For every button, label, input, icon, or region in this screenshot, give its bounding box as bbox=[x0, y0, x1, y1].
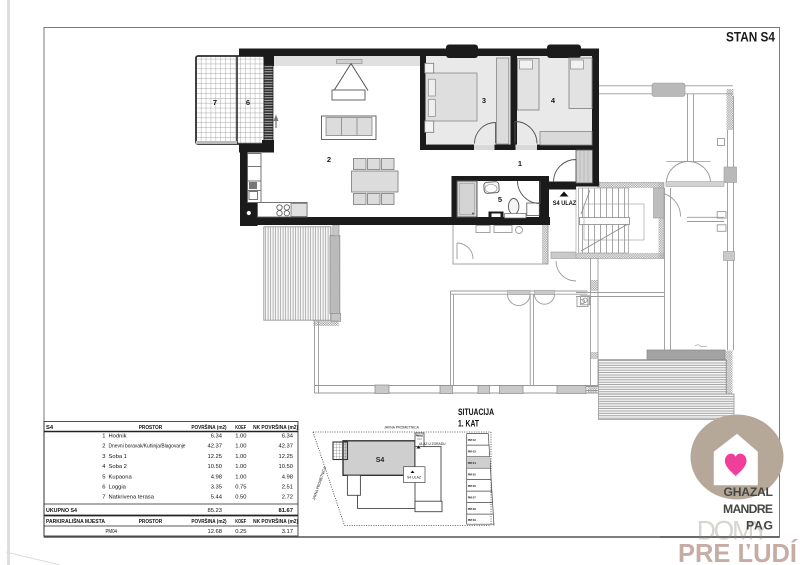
svg-text:5.44: 5.44 bbox=[211, 495, 223, 501]
svg-text:PM04: PM04 bbox=[106, 529, 118, 535]
svg-text:Soba 1: Soba 1 bbox=[109, 454, 127, 460]
svg-text:0.25: 0.25 bbox=[235, 529, 246, 535]
svg-text:12.68: 12.68 bbox=[207, 529, 222, 535]
svg-text:4.98: 4.98 bbox=[282, 474, 293, 480]
svg-text:Natkrivena terasa: Natkrivena terasa bbox=[109, 495, 155, 501]
svg-text:1. KAT: 1. KAT bbox=[458, 419, 479, 429]
svg-text:Loggia: Loggia bbox=[109, 485, 127, 491]
svg-text:6.34: 6.34 bbox=[211, 434, 223, 440]
svg-text:1: 1 bbox=[518, 159, 522, 168]
svg-text:KOEF: KOEF bbox=[235, 519, 246, 525]
svg-text:PRE ĽUDÍ: PRE ĽUDÍ bbox=[678, 539, 798, 565]
svg-text:1.00: 1.00 bbox=[235, 444, 246, 450]
svg-text:1.00: 1.00 bbox=[235, 454, 246, 460]
svg-text:10.50: 10.50 bbox=[207, 464, 222, 470]
svg-text:1.00: 1.00 bbox=[235, 464, 246, 470]
svg-text:6: 6 bbox=[246, 98, 250, 107]
svg-text:S4: S4 bbox=[46, 425, 54, 431]
svg-text:PM 05: PM 05 bbox=[468, 473, 477, 477]
svg-text:PM 02: PM 02 bbox=[468, 438, 477, 442]
svg-text:UKUPNO S4: UKUPNO S4 bbox=[46, 508, 78, 514]
svg-text:2.51: 2.51 bbox=[282, 485, 293, 491]
svg-text:Soba 2: Soba 2 bbox=[109, 464, 127, 470]
svg-text:S4: S4 bbox=[376, 457, 385, 464]
svg-text:1.00: 1.00 bbox=[235, 474, 246, 480]
svg-text:1.00: 1.00 bbox=[235, 434, 246, 440]
svg-text:Kupaona: Kupaona bbox=[109, 474, 133, 480]
svg-text:42.37: 42.37 bbox=[278, 444, 293, 450]
svg-text:12.25: 12.25 bbox=[278, 454, 293, 460]
svg-text:ULAZ U ZGRADU: ULAZ U ZGRADU bbox=[419, 442, 446, 446]
svg-text:5: 5 bbox=[498, 195, 502, 204]
svg-text:NK POVRŠINA (m2): NK POVRŠINA (m2) bbox=[253, 517, 298, 525]
svg-text:12.25: 12.25 bbox=[207, 454, 222, 460]
svg-text:POVRŠINA (m2): POVRŠINA (m2) bbox=[191, 423, 226, 431]
svg-text:0.75: 0.75 bbox=[235, 485, 246, 491]
svg-text:MANDRE: MANDRE bbox=[723, 502, 773, 516]
svg-text:JAVNA PROMETNICA: JAVNA PROMETNICA bbox=[384, 424, 419, 429]
svg-text:PM 03: PM 03 bbox=[468, 450, 477, 454]
svg-text:PM 07: PM 07 bbox=[468, 496, 477, 500]
svg-text:PM 01: PM 01 bbox=[416, 435, 424, 438]
svg-text:Hodnik: Hodnik bbox=[109, 434, 127, 440]
svg-text:PROSTOR: PROSTOR bbox=[139, 425, 163, 431]
svg-text:7: 7 bbox=[213, 98, 217, 107]
svg-text:KOEF: KOEF bbox=[235, 425, 246, 431]
svg-text:PAG: PAG bbox=[746, 519, 773, 533]
svg-text:2: 2 bbox=[102, 444, 105, 450]
svg-text:PM 09: PM 09 bbox=[468, 518, 477, 522]
svg-text:4.98: 4.98 bbox=[211, 474, 222, 480]
svg-text:3: 3 bbox=[102, 454, 105, 460]
svg-text:7: 7 bbox=[102, 495, 105, 501]
svg-text:85.23: 85.23 bbox=[207, 508, 222, 514]
svg-text:3.17: 3.17 bbox=[282, 529, 293, 535]
svg-text:0.50: 0.50 bbox=[235, 495, 246, 501]
svg-text:3.35: 3.35 bbox=[211, 485, 222, 491]
svg-text:GHAZAL: GHAZAL bbox=[724, 485, 774, 499]
svg-text:6: 6 bbox=[102, 485, 105, 491]
svg-text:2: 2 bbox=[327, 155, 331, 164]
svg-text:Dnevni boravak/Kuhinja/Blagova: Dnevni boravak/Kuhinja/Blagovanje bbox=[109, 444, 186, 450]
svg-text:PROSTOR: PROSTOR bbox=[139, 519, 163, 525]
svg-text:STAN S4: STAN S4 bbox=[726, 29, 775, 44]
svg-text:10.50: 10.50 bbox=[278, 464, 293, 470]
svg-text:S4 ULAZ: S4 ULAZ bbox=[553, 200, 577, 207]
svg-text:1: 1 bbox=[102, 434, 105, 440]
svg-text:3: 3 bbox=[482, 96, 486, 105]
svg-text:2.72: 2.72 bbox=[282, 495, 293, 501]
svg-text:POVRŠINA (m2): POVRŠINA (m2) bbox=[191, 517, 226, 525]
svg-text:PARKIRALIŠNA MJESTA: PARKIRALIŠNA MJESTA bbox=[46, 517, 106, 525]
svg-text:SITUACIJA: SITUACIJA bbox=[458, 407, 494, 417]
svg-text:S4 ULAZ: S4 ULAZ bbox=[407, 476, 422, 480]
svg-text:PM 08: PM 08 bbox=[468, 507, 477, 511]
svg-text:PM 06: PM 06 bbox=[468, 484, 477, 488]
svg-text:NK POVRŠINA (m2): NK POVRŠINA (m2) bbox=[253, 423, 298, 431]
svg-text:42.37: 42.37 bbox=[207, 444, 222, 450]
svg-text:5: 5 bbox=[102, 474, 105, 480]
svg-text:6.34: 6.34 bbox=[282, 434, 294, 440]
svg-text:PM 04: PM 04 bbox=[468, 461, 477, 465]
svg-text:81.67: 81.67 bbox=[278, 508, 293, 514]
